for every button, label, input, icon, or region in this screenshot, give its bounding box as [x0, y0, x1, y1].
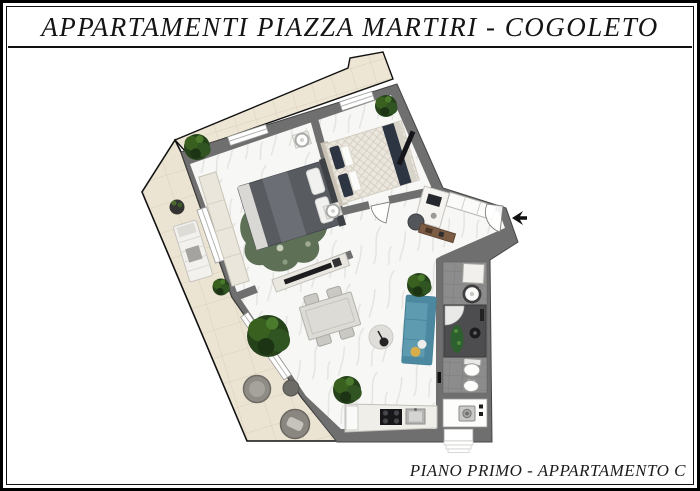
- kitchen: [345, 404, 437, 432]
- potted-plant-icon: [170, 200, 185, 215]
- flyer-page: APPARTAMENTI PIAZZA MARTIRI - COGOLETO: [0, 0, 700, 491]
- terrace-pouf: [283, 380, 299, 396]
- bathroom-utility-wall: [440, 393, 488, 399]
- shower-plant: [451, 325, 464, 353]
- shower: [444, 305, 486, 357]
- floor-plan: [0, 0, 700, 491]
- sofa: [402, 295, 437, 365]
- kitchen-steps: [444, 441, 473, 453]
- door-handle: [438, 372, 442, 383]
- plan-caption: PIANO PRIMO - APPARTAMENTO C: [410, 461, 686, 480]
- sink-cabinet: [462, 263, 484, 283]
- toilet: [463, 358, 481, 376]
- kitchen-cabinet: [346, 406, 358, 430]
- terrace-chair: [281, 410, 310, 439]
- terrace-chair-cushion: [249, 381, 265, 397]
- stove: [380, 409, 402, 425]
- caption-bar: PIANO PRIMO - APPARTAMENTO C: [410, 461, 686, 481]
- kitchen-door: [444, 429, 473, 441]
- entrance-arrow-icon: [512, 211, 527, 225]
- kitchen-sink: [406, 408, 425, 424]
